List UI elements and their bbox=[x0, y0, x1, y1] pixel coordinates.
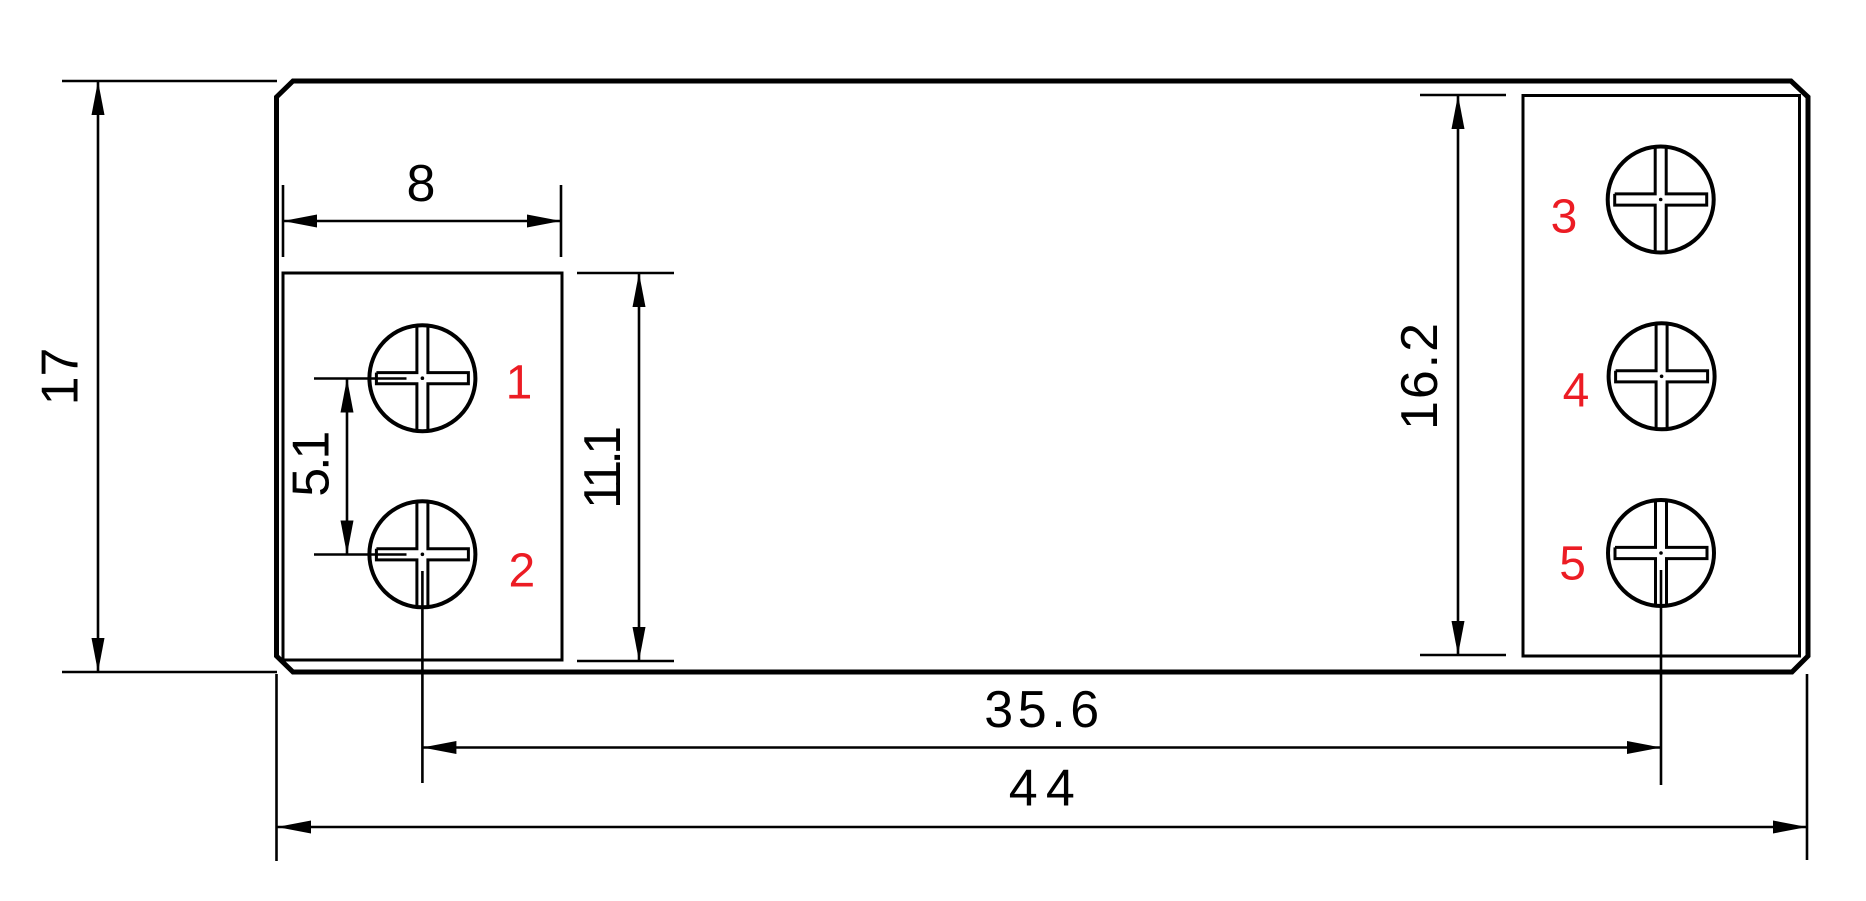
svg-text:2: 2 bbox=[508, 545, 535, 598]
svg-text:5: 5 bbox=[1559, 538, 1586, 591]
svg-text:1: 1 bbox=[506, 357, 533, 410]
svg-text:3: 3 bbox=[1551, 191, 1578, 244]
svg-text:35.6: 35.6 bbox=[984, 681, 1099, 739]
svg-text:11.1: 11.1 bbox=[574, 426, 632, 509]
svg-text:17: 17 bbox=[32, 348, 90, 406]
svg-text:4: 4 bbox=[1563, 365, 1590, 418]
svg-text:16.2: 16.2 bbox=[1391, 323, 1449, 430]
svg-text:5.1: 5.1 bbox=[283, 431, 341, 497]
svg-text:8: 8 bbox=[407, 155, 436, 213]
svg-text:44: 44 bbox=[1009, 760, 1075, 818]
